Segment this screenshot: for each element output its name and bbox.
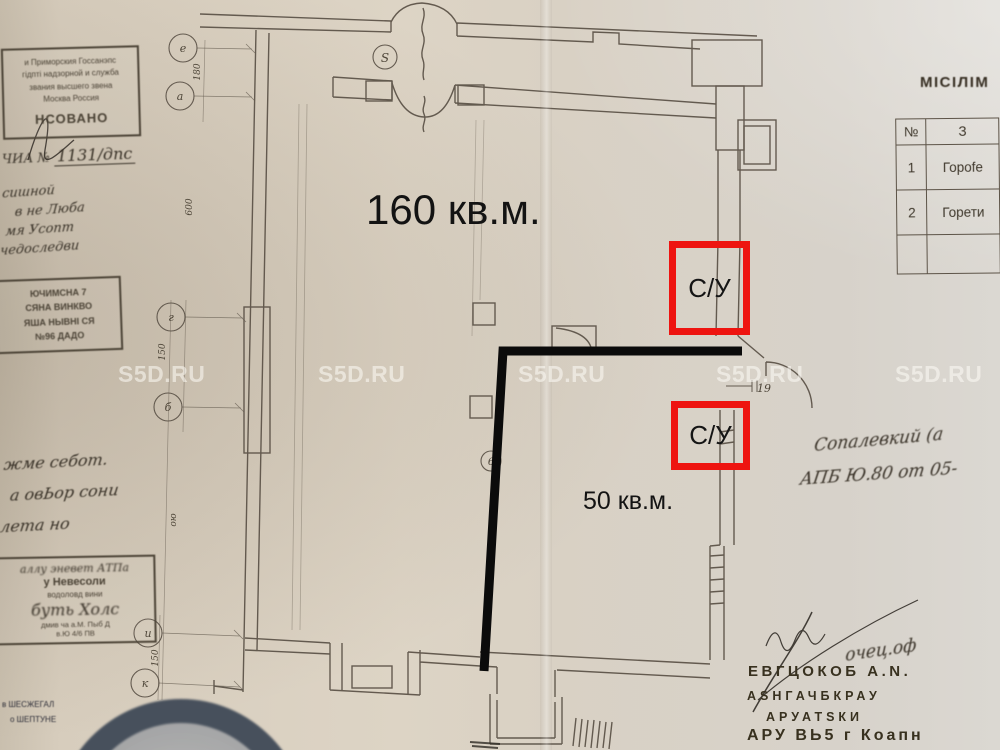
handwriting-line: лета но bbox=[0, 505, 117, 543]
table-header-row: № З bbox=[896, 118, 999, 145]
corner-text: в ШЕСЖЕГАЛ о ШЕПТУНЕ bbox=[2, 697, 56, 727]
scanned-floorplan-page: е а г б и к S 6 19 180 600 150 ою 150 S5… bbox=[0, 0, 1000, 750]
approval-number-prefix: ЧИА № bbox=[2, 151, 50, 168]
table-cell bbox=[927, 234, 1000, 274]
stamp-line: аллу эневет АТПа bbox=[0, 561, 151, 577]
table-title: МІСІЛІМ bbox=[920, 74, 989, 91]
watermark: S5D.RU bbox=[716, 361, 803, 388]
table-header-cell: З bbox=[926, 118, 999, 145]
left-stamp-box: ЮЧИМСНА 7 СЯНА ВИНКВО ЯША НЫВНІ СЯ №96 Д… bbox=[0, 276, 123, 354]
signature-stamp-line: АЅНГАЧБКРАУ bbox=[747, 689, 881, 703]
approval-number-line: ЧИА № 1131/дпс bbox=[2, 144, 136, 168]
table-cell: 2 bbox=[896, 190, 927, 235]
stamp-line: №96 ДАДО bbox=[2, 327, 118, 345]
wc-label: С/У bbox=[689, 420, 732, 451]
signature-stamp-line: АРУАТЅКИ bbox=[766, 710, 863, 724]
signature-stamp-line: АРУ ВЬ5 г Коапн bbox=[747, 727, 924, 745]
wc-box-upper: С/У bbox=[669, 241, 750, 335]
wc-box-lower: С/У bbox=[671, 401, 750, 470]
table-cell: 1 bbox=[896, 145, 927, 190]
table-row: 2 Горети bbox=[896, 189, 999, 235]
table-header-cell: № bbox=[896, 119, 927, 145]
area-label-large: 160 кв.м. bbox=[366, 186, 541, 234]
watermark: S5D.RU bbox=[318, 361, 405, 388]
bottom-left-stamp-box: аллу эневет АТПа у Невесоли водоловд вин… bbox=[0, 555, 157, 646]
signature-stamp-line: ЕВГЦОКОБ А.N. bbox=[748, 663, 911, 680]
table-cell bbox=[897, 235, 928, 274]
stamp-big-line: НСОВАНО bbox=[7, 107, 135, 130]
table-row bbox=[897, 234, 1000, 274]
approval-stamp: и Приморския Госсанэпс гідпті надзорной … bbox=[1, 45, 141, 139]
table-row: 1 Гороfе bbox=[896, 144, 999, 190]
table-cell: Горети bbox=[927, 189, 1000, 235]
handwriting-mid-left: жме себот. а овЬор сони лета но bbox=[0, 443, 124, 544]
table-cell: Гороfе bbox=[926, 144, 999, 190]
watermark: S5D.RU bbox=[118, 361, 205, 388]
handwriting-upper-left: сишной в не Люба мя Усопт чедоследви bbox=[0, 180, 87, 262]
watermark: S5D.RU bbox=[895, 361, 982, 388]
stamp-line: в.Ю 4/6 ПВ bbox=[0, 628, 152, 640]
area-label-small: 50 кв.м. bbox=[583, 487, 673, 516]
wc-label: С/У bbox=[688, 273, 731, 304]
stamp-line: Москва Россия bbox=[7, 91, 135, 107]
registry-table: № З 1 Гороfе 2 Горети bbox=[895, 117, 1000, 274]
stamp-line: буть Холс bbox=[0, 598, 151, 621]
corner-text-line: в ШЕСЖЕГАЛ bbox=[2, 697, 56, 712]
corner-text-line: о ШЕПТУНЕ bbox=[2, 712, 56, 727]
watermark: S5D.RU bbox=[518, 361, 605, 388]
approval-number: 1131/дпс bbox=[53, 144, 135, 167]
